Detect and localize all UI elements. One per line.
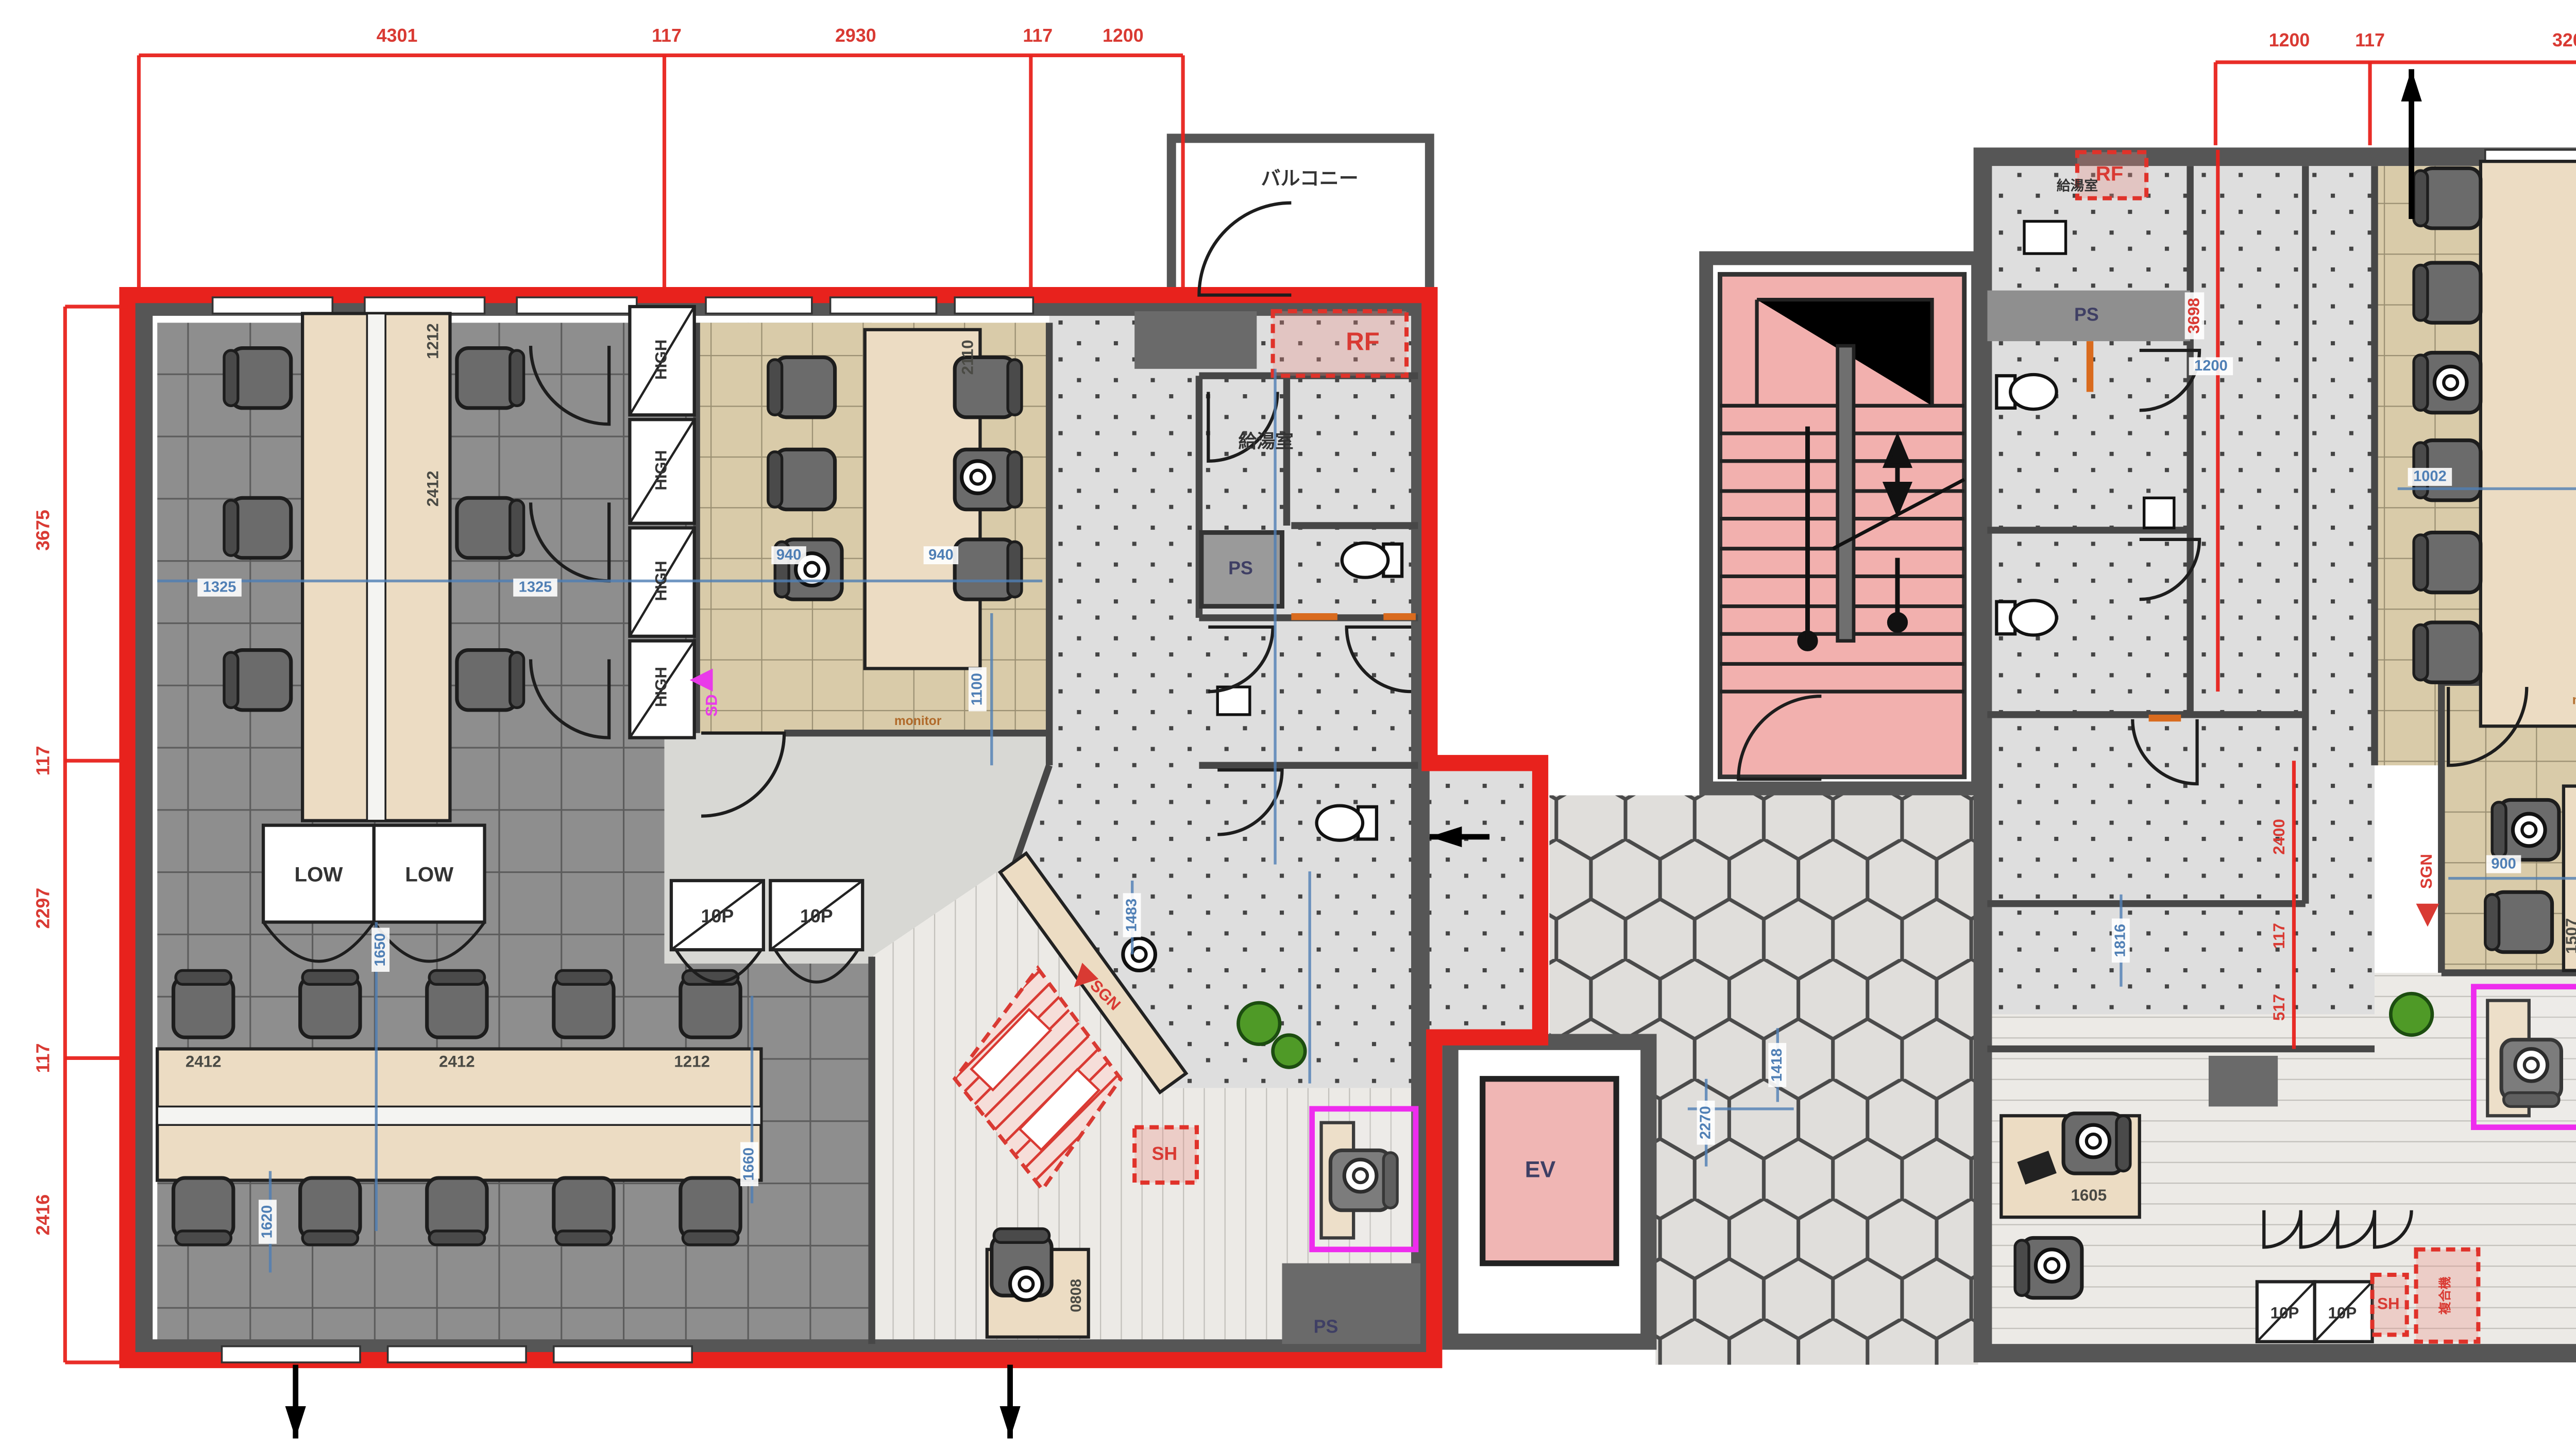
- staircase: [1720, 274, 1964, 777]
- chair-back: [1008, 542, 1022, 597]
- desk-divider: [157, 1106, 761, 1125]
- chair-back: [683, 1231, 738, 1245]
- chair: [955, 539, 1014, 599]
- chair-back: [768, 452, 782, 507]
- toilet-bowl: [1317, 806, 1363, 840]
- chair: [427, 1178, 487, 1238]
- chair-back: [510, 350, 524, 406]
- chair: [2421, 532, 2481, 592]
- wall-block-1: [1134, 311, 1257, 369]
- window: [955, 297, 1033, 313]
- plan-label: 117: [33, 1043, 54, 1073]
- chair: [681, 977, 740, 1037]
- wall-block-2: [1282, 1263, 1420, 1344]
- stair-divider: [1838, 346, 1854, 641]
- plan-label: 117: [2270, 923, 2288, 949]
- plan-label: 2270: [1697, 1106, 1714, 1139]
- toilet-bowl: [2010, 375, 2056, 409]
- chair-back: [2414, 355, 2428, 410]
- chair-back: [429, 970, 484, 984]
- left-notch-stipple: [1425, 768, 1540, 1037]
- person-head: [1132, 948, 1146, 962]
- plan-label: 117: [2355, 30, 2385, 50]
- plan-label: 2412: [185, 1053, 222, 1071]
- plan-label: HIGH: [652, 667, 670, 707]
- plan-label: 10P: [701, 906, 734, 926]
- chair: [457, 650, 517, 710]
- plan-label: 0808: [1068, 1279, 1084, 1312]
- chair-back: [2414, 265, 2428, 320]
- chair: [174, 977, 233, 1037]
- chair: [457, 498, 517, 558]
- plan-label: LOW: [405, 863, 453, 886]
- plan-label: 940: [776, 547, 802, 563]
- chair-back: [176, 1231, 231, 1245]
- flow-arrow-head: [285, 1406, 306, 1439]
- window: [365, 297, 485, 313]
- window: [388, 1346, 526, 1362]
- plan-label: 給湯室: [1238, 431, 1293, 451]
- pillar: [2209, 1056, 2278, 1106]
- desk: [2481, 161, 2576, 726]
- window: [554, 1346, 692, 1362]
- plan-label: 1650: [372, 933, 388, 967]
- chair-back: [556, 970, 611, 984]
- plan-label: 1483: [1123, 899, 1140, 932]
- person-head: [2522, 823, 2536, 837]
- plan-label: 2930: [835, 25, 876, 46]
- plan-label: monitor: [894, 714, 942, 728]
- plan-label: HIGH: [652, 450, 670, 491]
- chair-back: [302, 1231, 358, 1245]
- plan-label: 1200: [1103, 25, 1144, 46]
- chair-back: [429, 1231, 484, 1245]
- plan-label: LOW: [295, 863, 343, 886]
- chair: [174, 1178, 233, 1238]
- plan-label: 1660: [741, 1148, 757, 1181]
- window: [222, 1346, 360, 1362]
- chair: [300, 977, 360, 1037]
- plan-label: 1002: [2413, 468, 2447, 485]
- chair: [775, 357, 835, 417]
- chair: [231, 348, 291, 408]
- marker-triangle: [2416, 904, 2439, 927]
- plan-label: 117: [33, 746, 54, 775]
- plan-label: 10P: [2328, 1304, 2357, 1322]
- plan-label: 900: [2491, 855, 2516, 872]
- plan-label: 10P: [800, 906, 833, 926]
- toilet-bowl: [2010, 600, 2056, 635]
- chair-back: [2015, 1240, 2029, 1295]
- plan-label: EV: [1525, 1157, 1556, 1182]
- plan-label: monitor: [2572, 694, 2576, 707]
- chair: [457, 348, 517, 408]
- plan-label: 1200: [2194, 358, 2228, 374]
- plan-label: PS: [1228, 558, 1253, 578]
- chair: [2492, 892, 2552, 952]
- flow-arrow-head: [999, 1406, 1020, 1439]
- plan-label: 1325: [203, 579, 236, 595]
- toilet-bowl: [1342, 543, 1388, 578]
- plan-label: PS: [2074, 304, 2099, 325]
- chair: [554, 1178, 614, 1238]
- chair-back: [1008, 360, 1022, 415]
- plan-label: 117: [1023, 25, 1053, 46]
- window: [213, 297, 333, 313]
- chair: [427, 977, 487, 1037]
- plan-label: PS: [1314, 1316, 1338, 1337]
- plan-label: 940: [928, 547, 954, 563]
- plan-label: SGN: [2417, 854, 2435, 889]
- door-threshold: [2149, 715, 2181, 721]
- highlight-box: [1312, 1109, 1416, 1250]
- window: [517, 297, 637, 313]
- plan-label: RF: [2096, 162, 2124, 186]
- plan-label: SD: [703, 694, 721, 716]
- chair: [681, 1178, 740, 1238]
- plan-label: 3205: [2552, 30, 2576, 50]
- chair-back: [556, 1231, 611, 1245]
- chair-back: [1008, 452, 1022, 507]
- plan-label: 複合機: [2437, 1276, 2452, 1314]
- chair: [231, 650, 291, 710]
- chair: [2421, 263, 2481, 323]
- chair-back: [2414, 625, 2428, 680]
- chair: [2421, 168, 2481, 228]
- top-balcony: [1172, 138, 1430, 295]
- plant: [1238, 1003, 1280, 1044]
- plan-label: 10P: [2270, 1304, 2299, 1322]
- chair: [231, 498, 291, 558]
- plan-label: 2412: [423, 471, 442, 507]
- plan-label: HIGH: [652, 561, 670, 601]
- plan-label: 4301: [377, 25, 418, 46]
- floor-plan-svg: 4301117293011712001200117320511762383675…: [0, 0, 2576, 1450]
- plan-label: 517: [2270, 994, 2288, 1021]
- chair-back: [510, 500, 524, 555]
- chair-back: [2414, 535, 2428, 590]
- chair: [775, 449, 835, 509]
- chair-back: [2485, 895, 2499, 950]
- plan-label: RF: [1346, 328, 1380, 356]
- chair: [300, 1178, 360, 1238]
- chair-back: [224, 500, 238, 555]
- plan-label: 2416: [33, 1194, 54, 1236]
- desk-divider: [367, 313, 385, 820]
- plan-label: HIGH: [652, 340, 670, 380]
- plan-label: 1212: [674, 1053, 710, 1071]
- chair-back: [768, 360, 782, 415]
- plan-label: 3675: [33, 510, 54, 551]
- chair: [554, 977, 614, 1037]
- plant: [1273, 1035, 1306, 1068]
- plan-label: 1507: [2563, 918, 2576, 954]
- chair-back: [2492, 802, 2506, 857]
- plan-label: 給湯室: [2057, 177, 2098, 193]
- person-head: [971, 470, 985, 484]
- person-head: [2045, 1259, 2059, 1273]
- plan-label: 117: [652, 25, 682, 46]
- plan-label: 1605: [2071, 1186, 2107, 1204]
- floor-plan-canvas: 4301117293011712001200117320511762383675…: [0, 0, 2576, 1450]
- plan-label: 1620: [259, 1205, 276, 1239]
- person-head: [1019, 1277, 1033, 1291]
- chair-back: [224, 652, 238, 707]
- chair-back: [994, 1229, 1049, 1243]
- plant: [2391, 993, 2432, 1035]
- plan-label: 2110: [958, 340, 976, 375]
- door-threshold: [2087, 341, 2093, 392]
- person-head: [805, 563, 819, 577]
- window: [706, 297, 812, 313]
- chair-back: [176, 970, 231, 984]
- plan-label: 1816: [2112, 924, 2129, 957]
- chair-back: [510, 652, 524, 707]
- window: [831, 297, 937, 313]
- person-head: [2444, 376, 2458, 390]
- person-head: [2087, 1134, 2100, 1148]
- door-threshold: [1291, 613, 1337, 620]
- chair-back: [302, 970, 358, 984]
- plan-label: 1100: [969, 673, 986, 705]
- chair: [2421, 622, 2481, 682]
- chair-back: [2414, 171, 2428, 226]
- red-dashed-box: [1273, 311, 1406, 376]
- plan-label: 1418: [1769, 1049, 1785, 1082]
- chair-back: [224, 350, 238, 406]
- highlight-box: [2473, 987, 2576, 1127]
- door-threshold: [1383, 613, 1416, 620]
- plan-label: 1212: [423, 323, 442, 359]
- sanitary-fixture: [2144, 498, 2174, 528]
- plan-label: 2400: [2270, 819, 2288, 855]
- plan-label: 1325: [519, 579, 552, 595]
- plan-label: 2412: [439, 1053, 475, 1071]
- chair-back: [2116, 1116, 2130, 1171]
- plan-label: バルコニー: [1261, 168, 1359, 190]
- plan-label: 1200: [2269, 30, 2310, 50]
- plan-label: SH: [1151, 1143, 1177, 1164]
- plan-label: 3698: [2184, 298, 2202, 334]
- plan-label: SH: [2377, 1294, 2399, 1312]
- flow-arrow-head: [2401, 69, 2421, 102]
- sanitary-fixture: [2024, 221, 2066, 254]
- plan-label: 2297: [33, 888, 54, 929]
